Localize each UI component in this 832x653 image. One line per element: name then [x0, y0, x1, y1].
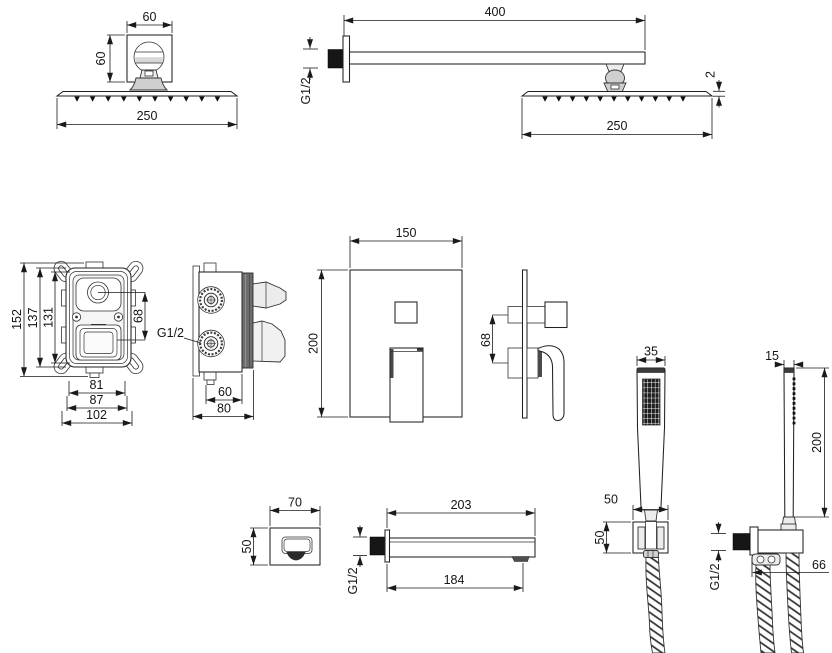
dim-total-height-label: 152 — [10, 309, 24, 330]
dim-outlet-depth-label: 66 — [812, 558, 826, 572]
aerator — [512, 557, 529, 562]
dim-control-offset-side: 68 — [479, 315, 508, 363]
dim-inlet-thread-label: G1/2 — [299, 77, 313, 104]
dim-head-thickness-label: 2 — [704, 71, 718, 78]
dim-inner-height-label: 131 — [42, 307, 56, 328]
concealed-valve-side-view: G1/2 60 80 — [157, 263, 286, 420]
shower-set-technical-drawing: 60 60 250 — [0, 0, 832, 653]
dim-head-depth-label: 15 — [765, 349, 779, 363]
dim-spout-width: 70 — [270, 496, 320, 527]
dim-outlet-thread-label: G1/2 — [708, 563, 722, 590]
dim-spout-height-label: 50 — [240, 540, 254, 554]
dim-holder-width-label: 50 — [604, 493, 618, 507]
dim-total-width-label: 102 — [86, 408, 107, 422]
outlet-hose — [756, 565, 775, 653]
dim-spout-width-label: 70 — [288, 496, 302, 510]
dim-flange-width-label: 60 — [143, 10, 157, 24]
trim-controls-side-view: 68 — [479, 270, 567, 421]
dim-body-length: 184 — [387, 563, 523, 592]
dim-control-offset-side-label: 68 — [479, 333, 493, 347]
outlet-thread — [733, 534, 750, 551]
trim-plate-edge — [523, 270, 528, 418]
dim-flange-width: 60 — [127, 10, 172, 33]
dim-inlet-thread: G1/2 — [299, 37, 318, 105]
technical-drawing-canvas: 60 60 250 — [0, 0, 832, 653]
hand-shower-stick — [782, 368, 796, 527]
shower-hose — [646, 558, 665, 653]
dim-hand-shower-width-label: 35 — [644, 345, 658, 359]
dim-body-width-label: 87 — [90, 393, 104, 407]
dim-flange-height-label: 60 — [94, 52, 108, 66]
dim-spout-thread-label: G1/2 — [346, 567, 360, 594]
hand-shower-body — [637, 368, 665, 521]
concealed-valve-front-view: 68 152 137 131 81 — [10, 259, 146, 426]
dim-body-height-label: 137 — [26, 308, 40, 329]
dim-holder-height-label: 50 — [593, 531, 607, 545]
mixer-handle — [390, 348, 423, 422]
spout-inlet-thread — [370, 537, 385, 555]
inlet-thread — [328, 50, 343, 69]
dim-spout-thread: G1/2 — [346, 526, 367, 595]
dim-head-width-label: 250 — [137, 109, 158, 123]
dim-head-width-side-label: 250 — [607, 119, 628, 133]
spout-front-view: 70 50 — [240, 496, 320, 566]
diverter-button — [395, 302, 417, 323]
valve-box-body — [62, 262, 136, 378]
ceiling-flange-and-ball-joint — [127, 35, 172, 90]
dim-flange-height: 60 — [94, 35, 125, 82]
dim-head-width-side: 250 — [522, 98, 712, 139]
spout-side-shapes — [370, 530, 535, 562]
dim-plate-width-label: 150 — [396, 226, 417, 240]
dim-control-offset-label: 68 — [132, 309, 146, 323]
dim-body-length-label: 184 — [444, 573, 465, 587]
dim-outlet-thread: G1/2 — [708, 522, 726, 591]
spray-face-grid — [643, 379, 661, 425]
hand-shower-hose — [786, 553, 804, 653]
spout-front-shapes — [270, 528, 320, 565]
dim-inner-width-label: 81 — [90, 378, 104, 392]
hand-shower-front-view: 35 50 50 — [593, 345, 668, 653]
dim-total-length: 203 — [387, 498, 535, 536]
trim-plate-front-view: 150 200 — [307, 226, 463, 422]
supply-port-upper — [198, 287, 225, 314]
dim-plate-width: 150 — [350, 226, 462, 268]
ceiling-shower-head-front-view: 60 60 250 — [57, 10, 237, 129]
hand-shower-side-view: 15 200 G1/2 66 — [708, 349, 829, 653]
spout-side-view: 203 184 G1/2 — [346, 498, 535, 595]
dim-arm-length-label: 400 — [485, 5, 506, 19]
lever-boss — [253, 321, 285, 362]
dim-total-width: 102 — [62, 408, 132, 426]
diverter-button-side — [545, 302, 567, 328]
dim-spout-height: 50 — [240, 528, 268, 565]
dim-port-thread-label: G1/2 — [157, 326, 184, 340]
dim-inner-depth-label: 60 — [218, 385, 232, 399]
dim-head-length-label: 200 — [810, 432, 824, 453]
spray-nozzles — [542, 97, 685, 102]
dim-arm-length: 400 — [344, 5, 645, 50]
mounting-plate — [242, 273, 253, 368]
dim-head-width: 250 — [57, 98, 237, 129]
shower-head-plate — [57, 92, 237, 102]
dim-head-thickness: 2 — [704, 71, 726, 108]
shower-arm — [328, 36, 645, 82]
valve-side-body — [193, 263, 286, 385]
spray-nozzles — [74, 97, 220, 102]
supply-port-lower — [198, 330, 225, 357]
dim-head-length: 200 — [795, 368, 829, 517]
wall-shower-arm-side-view: 400 G1/2 2 250 — [299, 5, 725, 139]
shower-head-plate-side — [522, 92, 712, 102]
arm-ball-joint — [604, 64, 626, 92]
dim-holder-height: 50 — [593, 522, 631, 553]
dim-plate-height-label: 200 — [307, 333, 321, 354]
dim-total-depth-label: 80 — [217, 402, 231, 416]
hose-connector — [645, 510, 658, 521]
diverter-boss — [253, 282, 286, 308]
dim-plate-height: 200 — [307, 270, 349, 417]
dim-head-depth: 15 — [765, 349, 802, 368]
trim-side-shapes — [508, 270, 567, 421]
dim-head-width: 35 — [637, 345, 665, 367]
dim-total-length-label: 203 — [451, 498, 472, 512]
hand-shower-holder — [633, 522, 668, 558]
